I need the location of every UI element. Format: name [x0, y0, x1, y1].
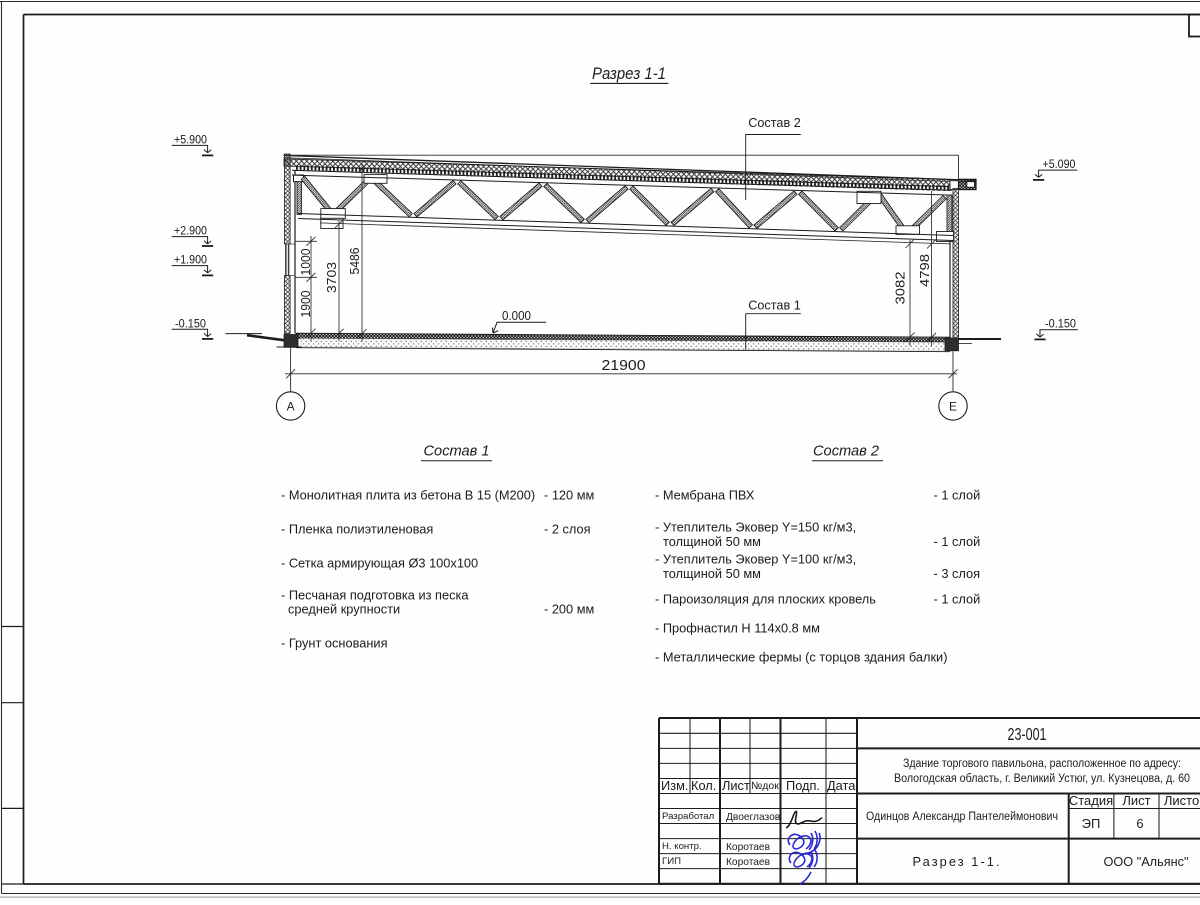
svg-text:Е: Е — [949, 400, 957, 414]
svg-text:- 1 слой: - 1 слой — [934, 488, 981, 503]
svg-text:Разработал: Разработал — [662, 811, 714, 822]
svg-text:+2.900: +2.900 — [174, 224, 207, 238]
svg-text:Изм.: Изм. — [661, 778, 688, 793]
svg-text:- Металлические фермы (с торцо: - Металлические фермы (с торцов здания б… — [655, 650, 947, 665]
svg-text:Здание торгового павильона, ра: Здание торгового павильона, расположенно… — [903, 758, 1181, 770]
svg-text:+5.900: +5.900 — [174, 133, 207, 147]
svg-text:- Сетка армирующая Ø3 100x100: - Сетка армирующая Ø3 100x100 — [281, 556, 478, 571]
svg-text:Состав 2: Состав 2 — [748, 115, 801, 130]
svg-text:+5.090: +5.090 — [1043, 157, 1076, 171]
svg-text:Лист: Лист — [722, 778, 750, 793]
svg-text:Коротаев: Коротаев — [726, 857, 770, 868]
svg-text:Коротаев: Коротаев — [726, 842, 770, 853]
svg-text:- 3 слоя: - 3 слоя — [934, 566, 981, 581]
svg-text:Подп.: Подп. — [786, 778, 820, 793]
svg-text:-0.150: -0.150 — [175, 316, 206, 330]
svg-text:Состав 1: Состав 1 — [424, 444, 490, 460]
svg-text:Стадия: Стадия — [1069, 793, 1113, 808]
svg-text:- 1 слой: - 1 слой — [934, 592, 981, 607]
svg-text:4798: 4798 — [918, 254, 932, 287]
svg-text:Кол.: Кол. — [691, 778, 716, 793]
svg-text:толщиной 50 мм: толщиной 50 мм — [663, 534, 761, 549]
svg-text:- Мембрана ПВХ: - Мембрана ПВХ — [655, 488, 755, 503]
svg-text:Состав 1: Состав 1 — [748, 297, 801, 312]
svg-text:А: А — [287, 400, 295, 414]
svg-text:- 1 слой: - 1 слой — [934, 534, 981, 549]
svg-text:№док.: №док. — [751, 780, 782, 792]
svg-text:6: 6 — [1136, 816, 1143, 831]
svg-text:толщиной 50 мм: толщиной 50 мм — [663, 566, 761, 581]
svg-text:0.000: 0.000 — [502, 308, 531, 323]
svg-text:1900: 1900 — [299, 291, 313, 318]
svg-text:Одинцов Александр Пантелеймоно: Одинцов Александр Пантелеймонович — [866, 811, 1058, 823]
svg-text:3703: 3703 — [325, 262, 339, 293]
svg-text:ЭП: ЭП — [1082, 816, 1101, 831]
svg-text:Состав 2: Состав 2 — [813, 444, 879, 460]
svg-text:1000: 1000 — [299, 249, 313, 276]
svg-text:- Пленка полиэтиленовая: - Пленка полиэтиленовая — [281, 522, 433, 537]
svg-text:средней крупности: средней крупности — [288, 602, 400, 617]
svg-text:23-001: 23-001 — [1008, 724, 1047, 744]
svg-text:- 200 мм: - 200 мм — [544, 602, 594, 617]
svg-text:3082: 3082 — [894, 272, 908, 305]
svg-text:- Песчаная подготовка из песка: - Песчаная подготовка из песка — [281, 588, 469, 603]
svg-text:- Пароизоляция для плоских кро: - Пароизоляция для плоских кровель — [655, 592, 876, 607]
svg-text:5486: 5486 — [348, 248, 362, 275]
svg-text:- Грунт основания: - Грунт основания — [281, 636, 388, 651]
svg-text:- Профнастил Н 114x0.8 мм: - Профнастил Н 114x0.8 мм — [655, 621, 820, 636]
svg-text:-0.150: -0.150 — [1045, 317, 1076, 331]
svg-text:ООО "Альянс": ООО "Альянс" — [1104, 854, 1189, 869]
svg-text:Лист: Лист — [1122, 793, 1150, 808]
svg-text:Н. контр.: Н. контр. — [662, 841, 702, 852]
svg-text:+1.900: +1.900 — [174, 253, 207, 267]
svg-text:Дата: Дата — [827, 778, 856, 793]
svg-text:- 120 мм: - 120 мм — [544, 487, 594, 502]
svg-text:21900: 21900 — [602, 358, 646, 374]
svg-text:- Утеплитель Эковер Y=150 кг/м: - Утеплитель Эковер Y=150 кг/м3, — [655, 520, 856, 535]
svg-text:ГИП: ГИП — [662, 856, 681, 867]
svg-text:Разрез 1-1: Разрез 1-1 — [592, 64, 666, 83]
svg-text:- Монолитная плита из бетона В: - Монолитная плита из бетона В 15 (М200) — [281, 487, 535, 502]
svg-text:Листов: Листов — [1164, 793, 1200, 808]
svg-text:- Утеплитель Эковер Y=100 кг/м: - Утеплитель Эковер Y=100 кг/м3, — [655, 552, 856, 567]
svg-text:Вологодская область, г. Велики: Вологодская область, г. Великий Устюг, у… — [894, 773, 1190, 785]
svg-text:Двоеглазов: Двоеглазов — [726, 812, 780, 823]
svg-text:- 2 слоя: - 2 слоя — [544, 522, 591, 537]
